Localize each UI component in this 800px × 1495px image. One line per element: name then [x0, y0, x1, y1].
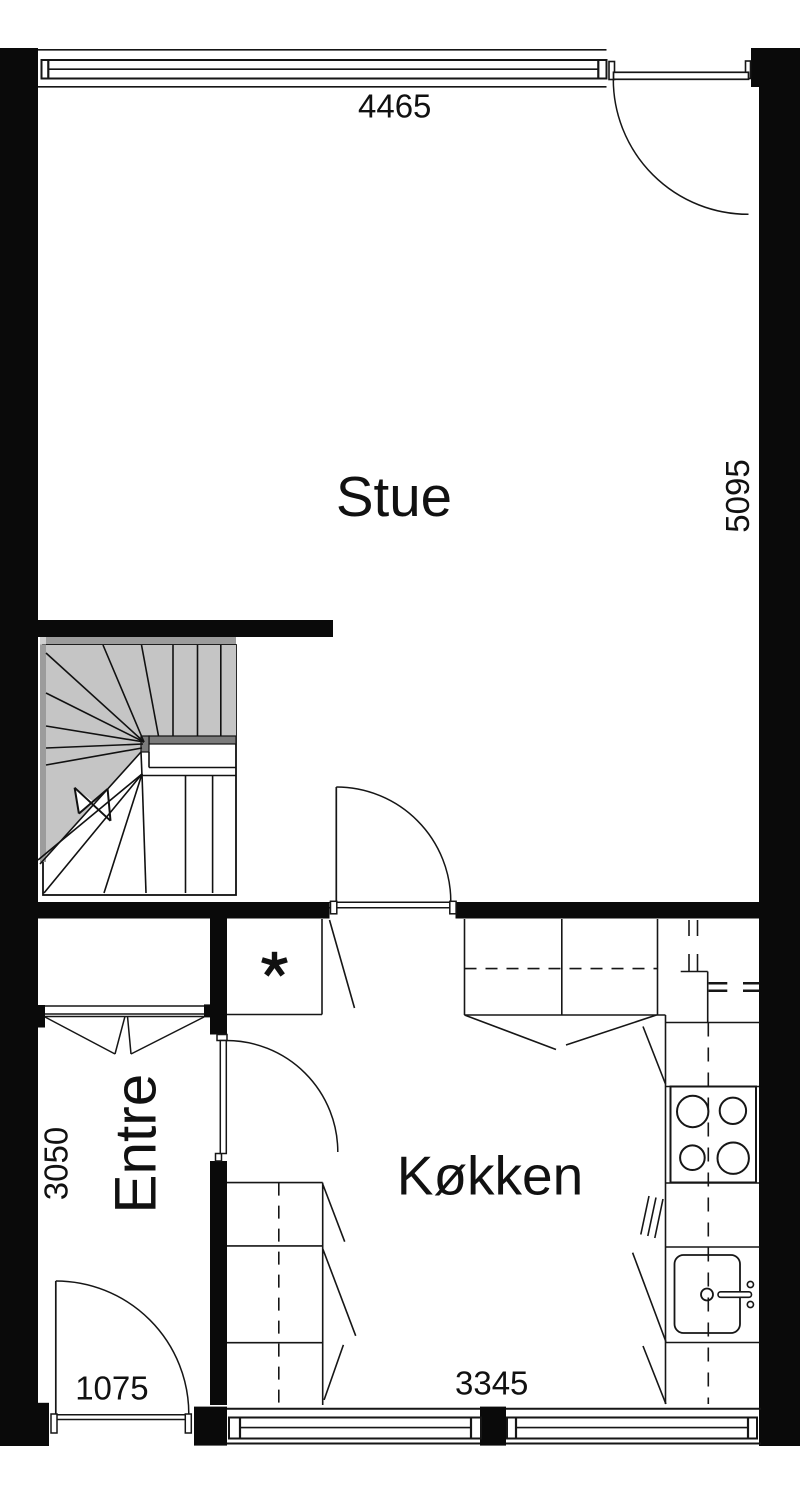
svg-text:3050: 3050	[38, 1127, 75, 1200]
svg-text:4465: 4465	[358, 88, 431, 125]
svg-text:3345: 3345	[455, 1365, 528, 1402]
svg-text:1075: 1075	[75, 1370, 148, 1407]
svg-text:5095: 5095	[719, 459, 756, 532]
svg-text:Stue: Stue	[336, 465, 452, 528]
svg-text:Køkken: Køkken	[397, 1145, 583, 1207]
svg-text:Entre: Entre	[103, 1074, 168, 1214]
